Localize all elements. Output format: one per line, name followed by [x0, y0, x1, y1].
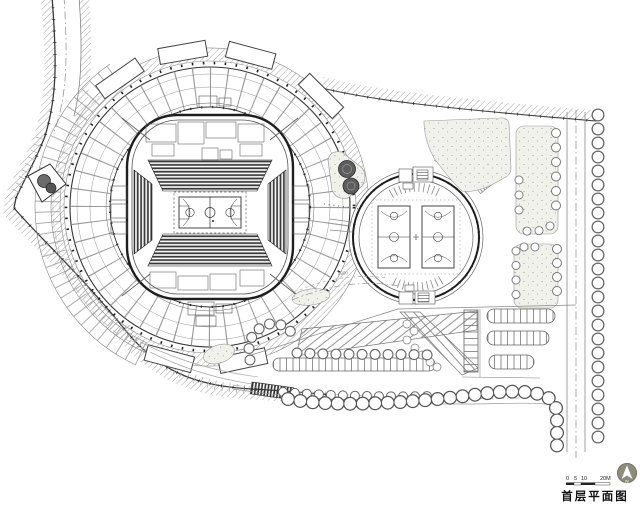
scale-label-0: 0 — [566, 476, 569, 482]
large-tree-icon — [339, 161, 356, 178]
arena-basketball-court — [174, 192, 246, 233]
parking-row-east-1 — [487, 309, 555, 323]
east-road — [567, 110, 585, 458]
large-tree-icon — [343, 178, 359, 194]
path-dimension-label: 5900 — [338, 270, 349, 276]
scale-label-5: 5 — [574, 476, 577, 482]
parking-row-east-3 — [489, 355, 534, 369]
scale-label-20m: 20M — [600, 476, 611, 482]
tree-icon — [46, 183, 56, 193]
site-plan-drawing: 5900 0 5 10 20M N 首层平面图 — [0, 0, 640, 515]
parking-row-long — [273, 358, 435, 371]
site-plan-sheet: 5900 0 5 10 20M N 首层平面图 — [0, 0, 640, 515]
training-court-left — [378, 206, 410, 268]
parking-row-east-2 — [487, 331, 549, 345]
title-block: 0 5 10 20M N 首层平面图 — [561, 464, 636, 504]
site-boundary-road-north — [322, 82, 596, 121]
training-court-right — [422, 206, 454, 268]
north-arrow-icon: N — [618, 464, 637, 485]
north-label: N — [625, 479, 628, 484]
parking-row-vertical — [464, 310, 478, 372]
green-east-lower — [514, 244, 558, 308]
scale-label-10: 10 — [581, 476, 587, 482]
plan-title: 首层平面图 — [561, 489, 629, 503]
scale-bar: 0 5 10 20M — [566, 476, 611, 485]
